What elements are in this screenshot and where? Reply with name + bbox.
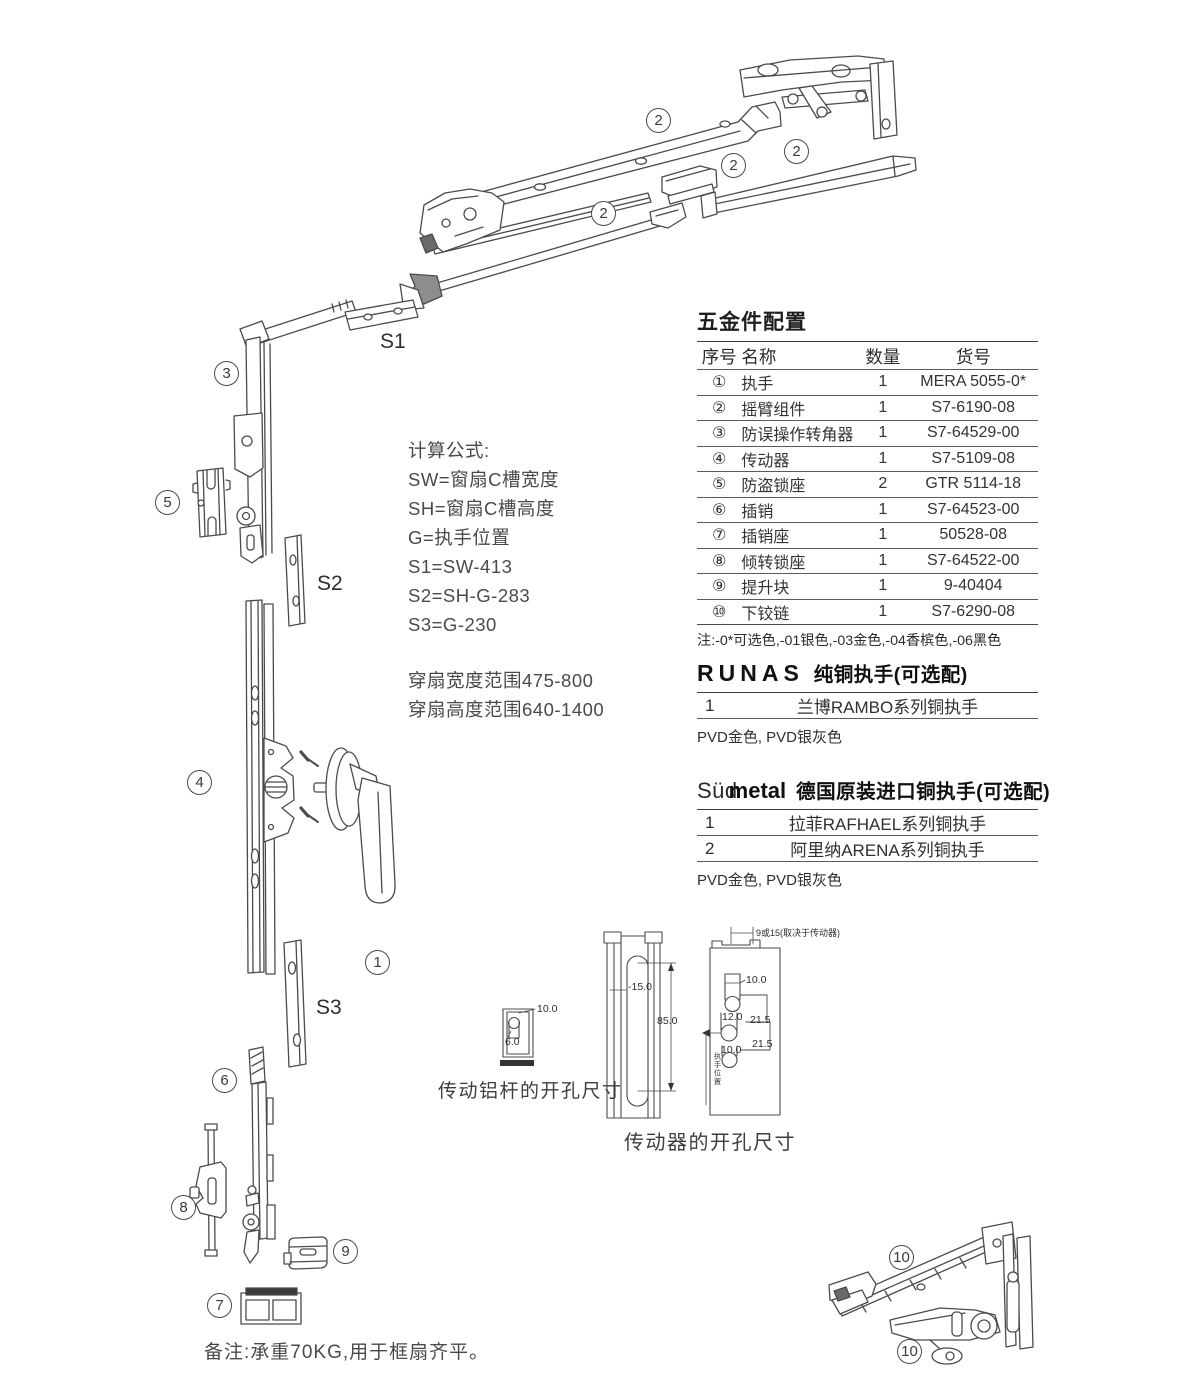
cell-qty: 1 [857, 574, 908, 600]
callout-3: 3 [214, 361, 239, 386]
callout-4: 4 [187, 770, 212, 795]
table-row: ⑧倾转锁座1S7-64522-00 [697, 548, 1038, 574]
s2-plate-drawing [285, 535, 305, 626]
option-row: 1 兰博RAMBO系列铜执手 [697, 693, 1038, 719]
s2-label: S2 [317, 572, 343, 596]
footer-note: 备注:承重70KG,用于框扇齐平。 [204, 1337, 489, 1364]
hardware-table-title: 五金件配置 [697, 306, 1038, 342]
handle-drawing [314, 748, 395, 903]
callout-2a: 2 [646, 108, 671, 133]
cell-no: ⑨ [697, 574, 741, 600]
callout-2b: 2 [784, 139, 809, 164]
sudmetal-brand-bold: metal [729, 778, 786, 803]
cell-no: ② [697, 395, 741, 421]
dim-face-gap2: 21.5 [752, 1038, 772, 1050]
callout-10b: 10 [897, 1339, 922, 1364]
formula-block: 计算公式: SW=窗扇C槽宽度 SH=窗扇C槽高度 G=执手位置 S1=SW-4… [408, 436, 559, 639]
option-row-name: 拉菲RAFHAEL系列铜执手 [737, 810, 1038, 835]
cell-qty: 1 [857, 395, 908, 421]
bottom-hinge-drawing [829, 1222, 1033, 1364]
dim-slot-offset: -15.0 [628, 981, 652, 993]
option-row-name: 兰博RAMBO系列铜执手 [737, 693, 1038, 718]
option-row: 1 拉菲RAFHAEL系列铜执手 [697, 810, 1038, 836]
table-header-row: 序号 名称 数量 货号 [697, 344, 1038, 370]
sudmetal-option-table: Südmetal 德国原装进口铜执手(可选配) 1 拉菲RAFHAEL系列铜执手… [697, 775, 1038, 890]
alu-rod-drawing-label: 传动铝杆的开孔尺寸 [438, 1076, 623, 1103]
table-row: ⑤防盗锁座2GTR 5114-18 [697, 472, 1038, 498]
cell-code: 50528-08 [908, 523, 1038, 549]
cell-name: 摇臂组件 [741, 395, 857, 421]
cell-name: 提升块 [741, 574, 857, 600]
cell-no: ① [697, 370, 741, 396]
cell-name: 防盗锁座 [741, 472, 857, 498]
cell-no: ⑩ [697, 599, 741, 625]
gearbox-drawing-label: 传动器的开孔尺寸 [624, 1126, 796, 1155]
option-row-number: 2 [697, 839, 737, 859]
formula-title: 计算公式: [408, 436, 559, 465]
cell-qty: 1 [857, 548, 908, 574]
cell-no: ⑦ [697, 523, 741, 549]
cell-code: S7-5109-08 [908, 446, 1038, 472]
cell-name: 插销座 [741, 523, 857, 549]
gear-drive-drawing [246, 600, 318, 974]
runas-brand: RUNAS [697, 660, 804, 687]
table-row: ①执手1MERA 5055-0* [697, 370, 1038, 396]
range-line: 穿扇高度范围640-1400 [408, 695, 604, 724]
s1-plate-drawing [345, 300, 418, 330]
cell-name: 下铰链 [741, 599, 857, 625]
cell-no: ⑤ [697, 472, 741, 498]
tilt-keeper-drawing [190, 1124, 226, 1256]
cell-name: 防误操作转角器 [741, 421, 857, 447]
cell-code: 9-40404 [908, 574, 1038, 600]
bolt-keeper-drawing [241, 1288, 301, 1324]
dim-face-gap1: 21.5 [750, 1014, 770, 1026]
cell-name: 倾转锁座 [741, 548, 857, 574]
range-line: 穿扇宽度范围475-800 [408, 666, 604, 695]
dim-alu-height: 6.0 [505, 1036, 520, 1048]
stay-arm-assembly-drawing [400, 56, 916, 310]
callout-10a: 10 [889, 1245, 914, 1270]
cell-code: S7-64523-00 [908, 497, 1038, 523]
cell-qty: 1 [857, 523, 908, 549]
formula-line: S3=G-230 [408, 610, 559, 639]
sudmetal-finish-note: PVD金色, PVD银灰色 [697, 869, 1038, 890]
cell-no: ⑧ [697, 548, 741, 574]
callout-6: 6 [212, 1068, 237, 1093]
lift-block-drawing [284, 1237, 327, 1269]
dim-slot-length: 85.0 [657, 1015, 677, 1027]
runas-title: 纯铜执手(可选配) [814, 658, 968, 687]
hardware-datasheet: 2 2 2 2 3 5 4 1 6 8 9 7 10 10 S1 S2 S3 计… [0, 0, 1200, 1400]
lock-keeper-drawing [193, 468, 230, 537]
cell-qty: 2 [857, 472, 908, 498]
callout-2c: 2 [721, 153, 746, 178]
cell-code: S7-64522-00 [908, 548, 1038, 574]
table-row: ⑨提升块19-40404 [697, 574, 1038, 600]
cell-code: MERA 5055-0* [908, 370, 1038, 396]
cell-code: S7-64529-00 [908, 421, 1038, 447]
option-row-name: 阿里纳ARENA系列铜执手 [737, 836, 1038, 861]
dim-face-vertical-note: 执手位置 [712, 1052, 723, 1086]
s1-label: S1 [380, 330, 406, 354]
header-code: 货号 [908, 344, 1038, 370]
cell-no: ⑥ [697, 497, 741, 523]
sudmetal-title: 德国原装进口铜执手(可选配) [796, 775, 1050, 804]
hardware-table-grid: 序号 名称 数量 货号 ①执手1MERA 5055-0* ②摇臂组件1S7-61… [697, 344, 1038, 625]
callout-9: 9 [333, 1239, 358, 1264]
sudmetal-header: Südmetal 德国原装进口铜执手(可选配) [697, 775, 1038, 810]
dim-alu-width: 10.0 [537, 1003, 557, 1015]
callout-5: 5 [155, 490, 180, 515]
table-row: ③防误操作转角器1S7-64529-00 [697, 421, 1038, 447]
cell-code: GTR 5114-18 [908, 472, 1038, 498]
cell-qty: 1 [857, 446, 908, 472]
formula-line: SH=窗扇C槽高度 [408, 494, 559, 523]
cell-qty: 1 [857, 497, 908, 523]
range-block: 穿扇宽度范围475-800 穿扇高度范围640-1400 [408, 666, 604, 724]
table-row: ⑥插销1S7-64523-00 [697, 497, 1038, 523]
cell-no: ③ [697, 421, 741, 447]
s3-plate-drawing [284, 940, 306, 1067]
table-row: ④传动器1S7-5109-08 [697, 446, 1038, 472]
dim-face-hole3: 10.0 [721, 1044, 741, 1056]
formula-line: S2=SH-G-283 [408, 581, 559, 610]
callout-1: 1 [365, 950, 390, 975]
cell-name: 执手 [741, 370, 857, 396]
option-row-number: 1 [697, 696, 737, 716]
espagnolette-drawing [243, 1047, 275, 1263]
formula-line: SW=窗扇C槽宽度 [408, 465, 559, 494]
formula-line: S1=SW-413 [408, 552, 559, 581]
hardware-table: 五金件配置 序号 名称 数量 货号 ①执手1MERA 5055-0* ②摇臂组件… [697, 306, 1038, 650]
cell-code: S7-6190-08 [908, 395, 1038, 421]
runas-option-table: RUNAS 纯铜执手(可选配) 1 兰博RAMBO系列铜执手 PVD金色, PV… [697, 658, 1038, 747]
cell-name: 传动器 [741, 446, 857, 472]
runas-finish-note: PVD金色, PVD银灰色 [697, 726, 1038, 747]
dim-face-hole1: 10.0 [746, 974, 766, 986]
callout-7: 7 [207, 1293, 232, 1318]
formula-line: G=执手位置 [408, 523, 559, 552]
color-options-note: 注:-0*可选色,-01银色,-03金色,-04香槟色,-06黑色 [697, 630, 1038, 650]
dim-face-hole2: 12.0 [722, 1011, 742, 1023]
callout-8: 8 [171, 1195, 196, 1220]
cell-qty: 1 [857, 370, 908, 396]
runas-header: RUNAS 纯铜执手(可选配) [697, 658, 1038, 693]
dim-face-top: 9或15(取决于传动器) [756, 926, 840, 939]
callout-2d: 2 [591, 201, 616, 226]
cell-code: S7-6290-08 [908, 599, 1038, 625]
table-row: ⑩下铰链1S7-6290-08 [697, 599, 1038, 625]
header-no: 序号 [697, 344, 741, 370]
corner-drive-drawing [234, 300, 356, 563]
table-row: ⑦插销座150528-08 [697, 523, 1038, 549]
cell-no: ④ [697, 446, 741, 472]
option-row-number: 1 [697, 813, 737, 833]
cell-name: 插销 [741, 497, 857, 523]
table-row: ②摇臂组件1S7-6190-08 [697, 395, 1038, 421]
s3-label: S3 [316, 996, 342, 1020]
cell-qty: 1 [857, 599, 908, 625]
header-qty: 数量 [857, 344, 908, 370]
option-row: 2 阿里纳ARENA系列铜执手 [697, 836, 1038, 862]
cell-qty: 1 [857, 421, 908, 447]
header-name: 名称 [741, 344, 857, 370]
